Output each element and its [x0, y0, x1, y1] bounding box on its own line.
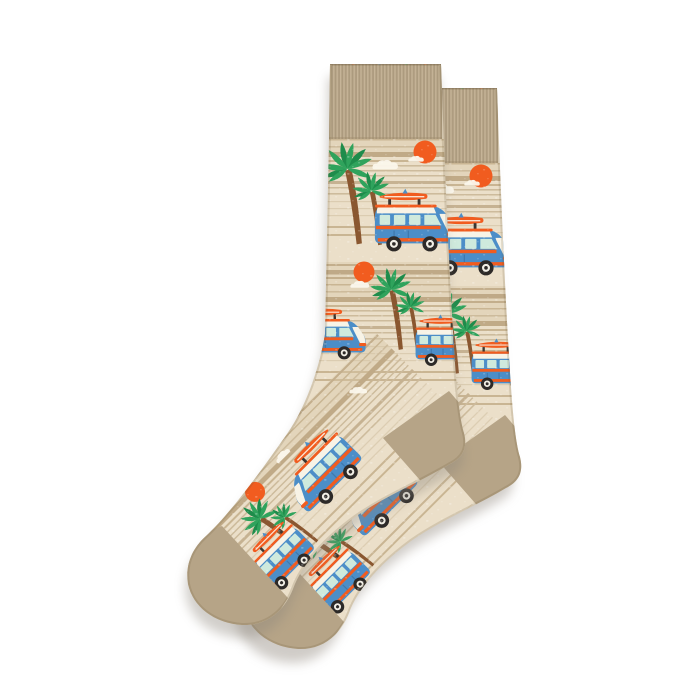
product-photo — [0, 0, 700, 700]
socks-illustration — [0, 0, 700, 700]
